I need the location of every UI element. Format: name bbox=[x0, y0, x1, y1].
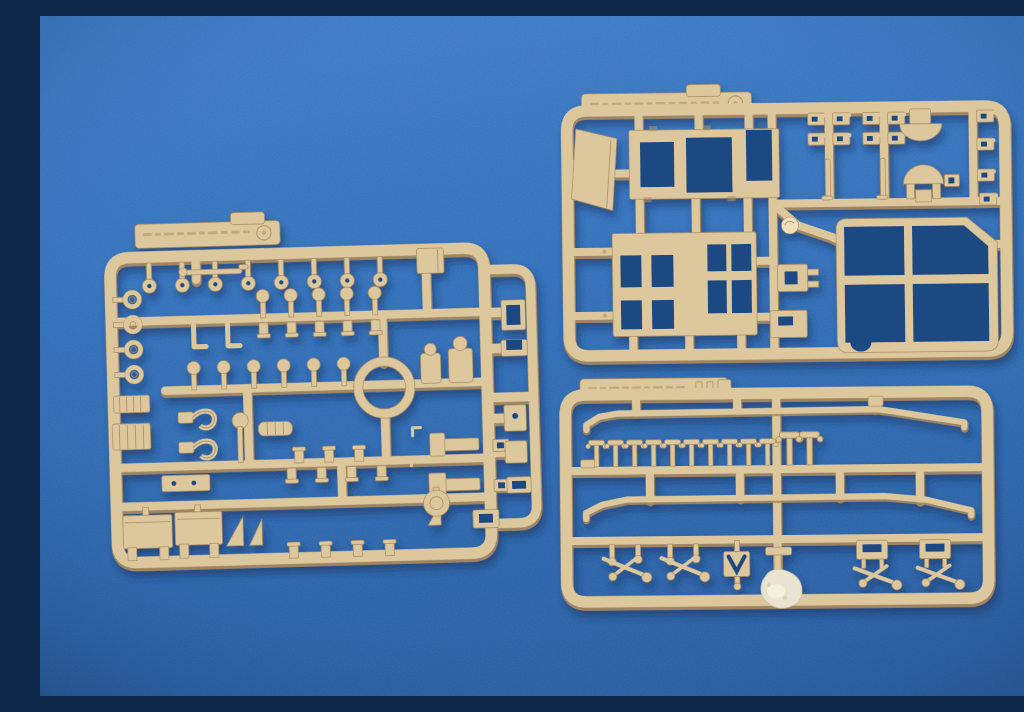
part-hollow-window bbox=[501, 300, 526, 331]
part-lower-wall-frame bbox=[602, 232, 757, 337]
part-plate bbox=[162, 474, 210, 491]
part-engine-block bbox=[112, 423, 151, 450]
part-upper-cab-panel bbox=[629, 125, 780, 203]
scene-canvas bbox=[40, 16, 1024, 696]
part-arch-dome bbox=[903, 165, 943, 202]
part-barrel bbox=[258, 421, 292, 436]
part-door-panel bbox=[571, 129, 618, 212]
photo-model-kit-sprues bbox=[40, 16, 1024, 696]
part-u-channel bbox=[501, 340, 527, 357]
part-slot-block bbox=[770, 310, 807, 337]
mould-swirl bbox=[781, 217, 798, 234]
part-engine-block bbox=[113, 395, 149, 413]
part-square-flap bbox=[416, 248, 444, 274]
part-window-frame bbox=[836, 217, 999, 353]
